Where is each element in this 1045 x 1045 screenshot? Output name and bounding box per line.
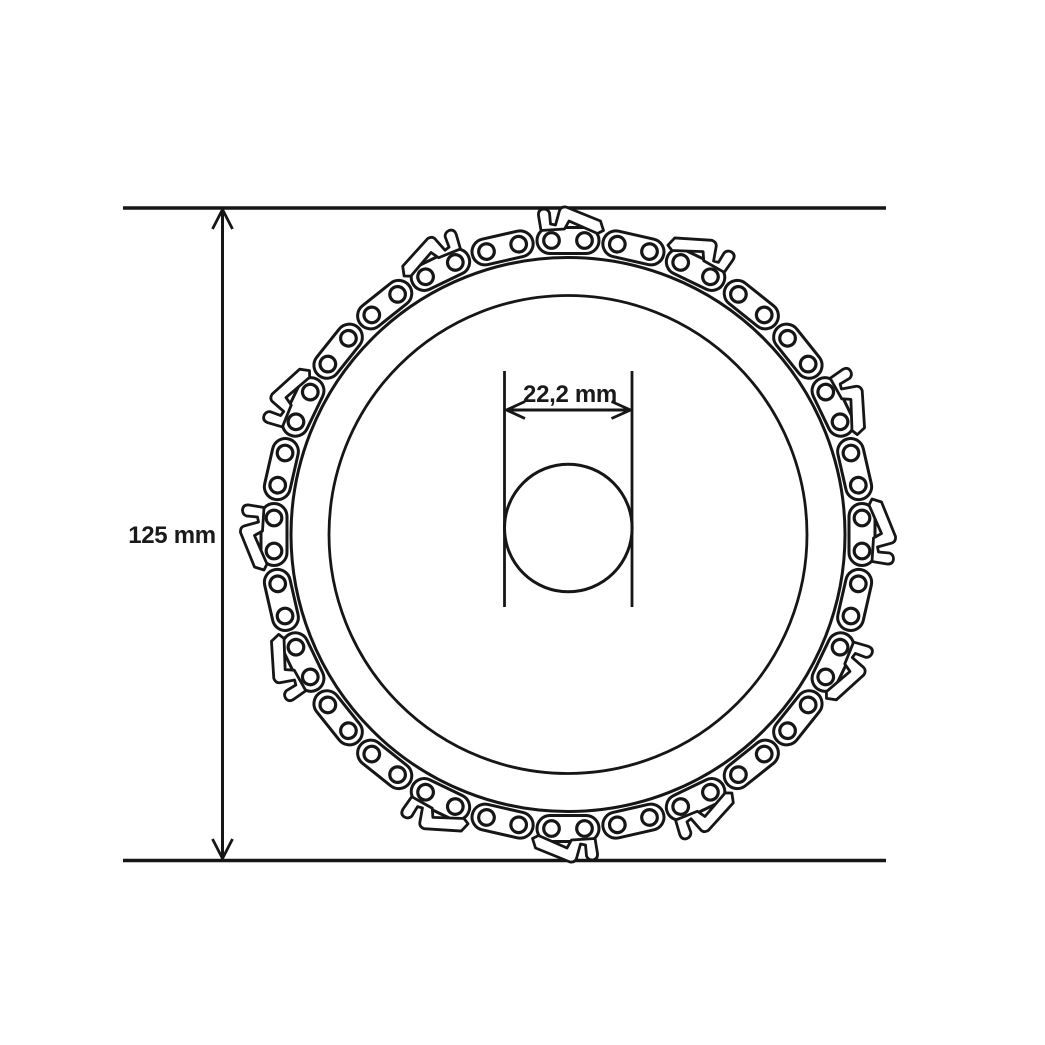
- rivet: [849, 476, 868, 495]
- rivet: [544, 821, 560, 837]
- rivet: [577, 821, 593, 837]
- disc-inner-circle: [329, 296, 807, 774]
- height-dimension-label: 125 mm: [128, 522, 216, 549]
- rivet: [544, 233, 560, 249]
- chain-link: [240, 504, 287, 571]
- bore-circle: [505, 464, 633, 592]
- rivet: [854, 543, 870, 559]
- rivet: [477, 242, 496, 261]
- rivet: [266, 510, 282, 526]
- chain-link: [257, 624, 328, 704]
- rivet: [640, 242, 659, 261]
- chain-link: [808, 364, 879, 444]
- rivet: [266, 543, 282, 559]
- rivet: [842, 607, 861, 626]
- bore-dimension-label: 22,2 mm: [523, 381, 617, 408]
- rivet: [640, 808, 659, 827]
- rivet: [849, 574, 868, 593]
- rivet: [477, 808, 496, 827]
- chain-link: [398, 774, 478, 845]
- rivet: [276, 607, 295, 626]
- diagram-canvas: 125 mm 22,2 mm: [0, 0, 1045, 1045]
- chain-link: [537, 207, 604, 254]
- rivet: [577, 233, 593, 249]
- rivet: [268, 476, 287, 495]
- chain-link: [849, 499, 896, 566]
- rivet: [276, 444, 295, 463]
- rivet: [854, 510, 870, 526]
- rivet: [608, 235, 627, 254]
- rivet: [509, 235, 528, 254]
- chain-disc-diagram: 125 mm 22,2 mm: [0, 0, 1045, 1045]
- chain-ring: [240, 207, 895, 862]
- rivet: [268, 574, 287, 593]
- rivet: [842, 444, 861, 463]
- rivet: [509, 815, 528, 834]
- disc-plate-circle: [291, 258, 845, 812]
- chain-link: [533, 816, 600, 863]
- rivet: [608, 815, 627, 834]
- chain-link: [658, 224, 738, 295]
